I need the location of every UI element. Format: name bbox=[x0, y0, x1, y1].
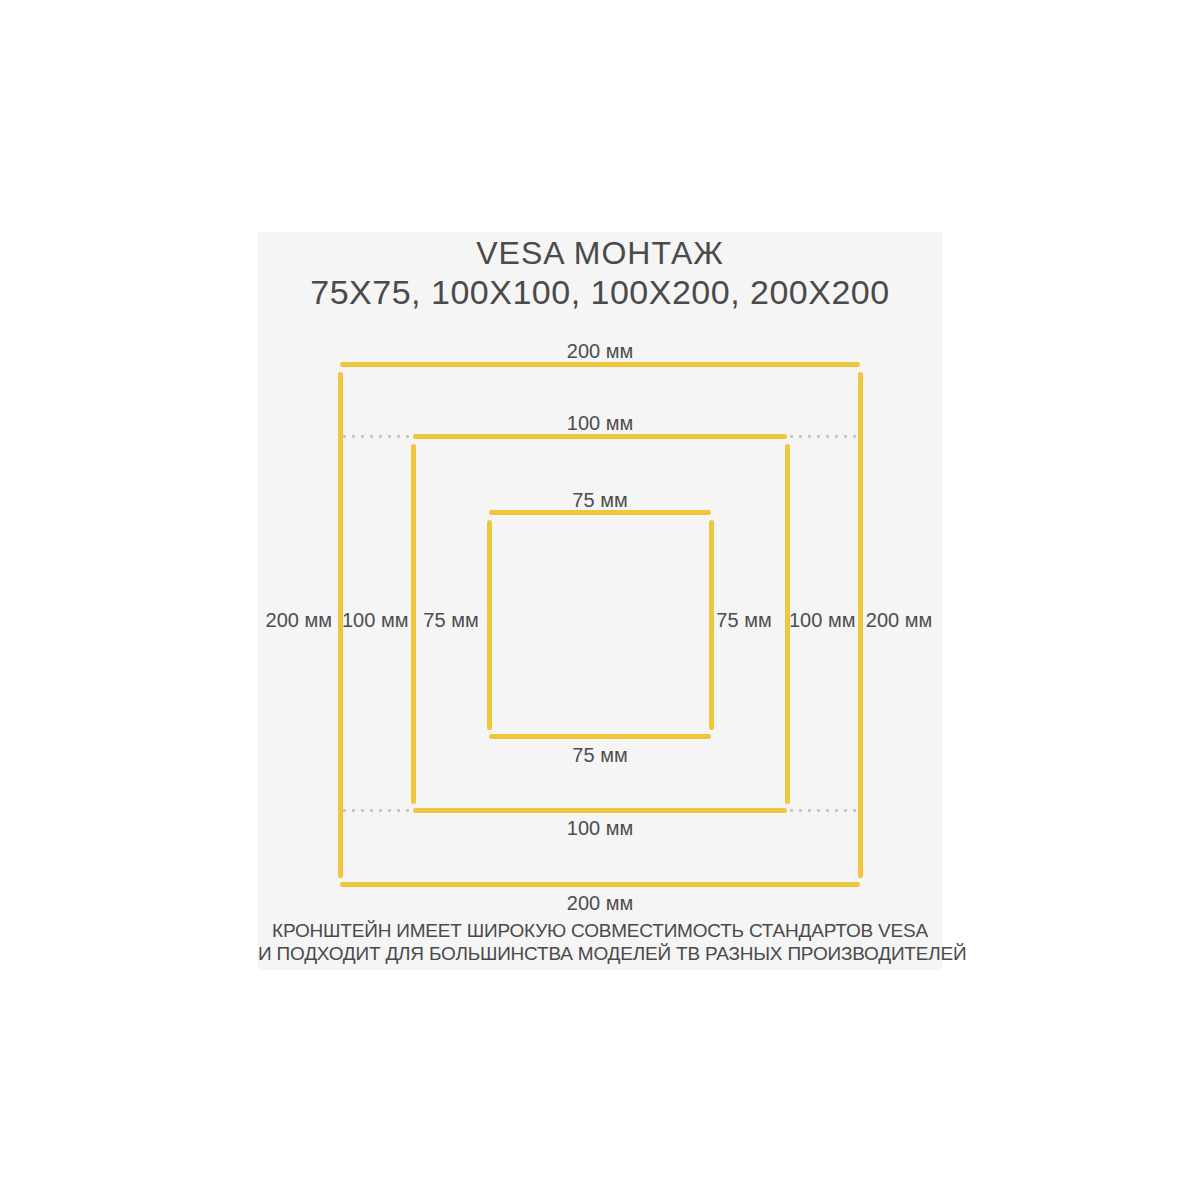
dim-label-200-right: 200 мм bbox=[864, 608, 934, 632]
square-100-bottom-edge bbox=[413, 808, 787, 813]
dim-label-200-bottom: 200 мм bbox=[258, 891, 942, 915]
dim-label-100-left: 100 мм bbox=[342, 608, 408, 632]
dim-label-75-bottom: 75 мм bbox=[258, 743, 942, 767]
dim-label-75-top: 75 мм bbox=[258, 488, 942, 512]
dim-label-100-right: 100 мм bbox=[789, 608, 855, 632]
extension-dots-top-right bbox=[790, 435, 857, 438]
extension-dots-bottom-left bbox=[343, 809, 409, 812]
dim-label-75-right: 75 мм bbox=[713, 608, 775, 632]
dim-label-200-top: 200 мм bbox=[258, 339, 942, 363]
dim-label-100-top: 100 мм bbox=[258, 411, 942, 435]
square-75-left-edge bbox=[487, 520, 492, 730]
extension-dots-top-left bbox=[343, 435, 409, 438]
square-200-bottom-edge bbox=[340, 882, 860, 887]
page-title: VESA МОНТАЖ bbox=[258, 235, 942, 271]
dim-label-75-left: 75 мм bbox=[417, 608, 485, 632]
square-200-right-edge bbox=[858, 372, 863, 878]
footer-line2: И ПОДХОДИТ ДЛЯ БОЛЬШИНСТВА МОДЕЛЕЙ ТВ РА… bbox=[258, 942, 942, 965]
dim-label-200-left: 200 мм bbox=[258, 608, 332, 632]
square-75-bottom-edge bbox=[489, 734, 711, 739]
footer-line1: КРОНШТЕЙН ИМЕЕТ ШИРОКУЮ СОВМЕСТИМОСТЬ СТ… bbox=[258, 919, 942, 942]
dim-label-100-bottom: 100 мм bbox=[258, 816, 942, 840]
vesa-infographic: VESA МОНТАЖ 75X75, 100X100, 100X200, 200… bbox=[0, 0, 1200, 1200]
page-subtitle-standards: 75X75, 100X100, 100X200, 200X200 bbox=[258, 273, 942, 311]
extension-dots-bottom-right bbox=[790, 809, 857, 812]
content-panel: VESA МОНТАЖ 75X75, 100X100, 100X200, 200… bbox=[258, 232, 942, 970]
